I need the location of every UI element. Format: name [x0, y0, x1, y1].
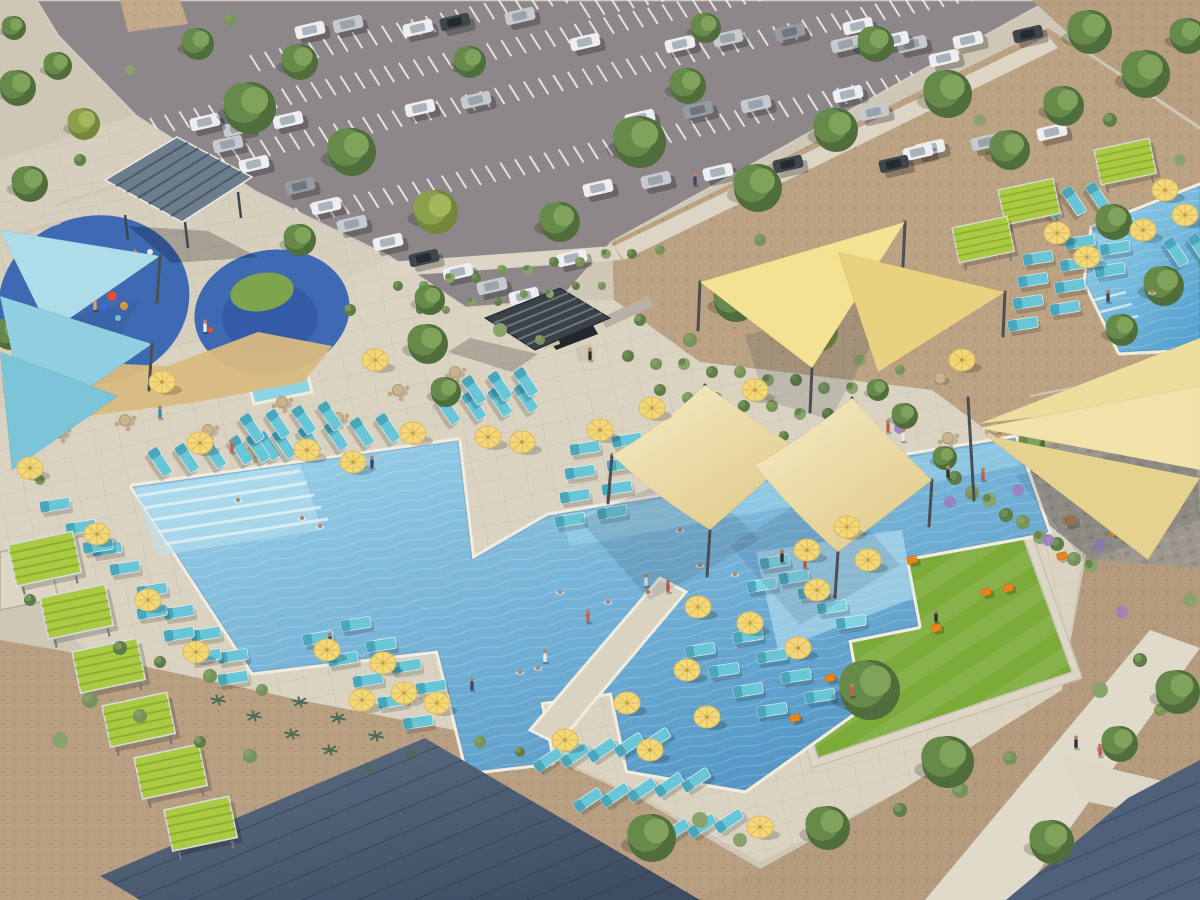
shrub-highlight: [494, 298, 498, 302]
person-shadow: [1106, 302, 1112, 305]
umbrella-pole: [1085, 255, 1089, 259]
tree: [0, 70, 36, 106]
shrub-highlight: [575, 257, 581, 263]
umbrella-pole: [805, 548, 809, 552]
umbrella-pole: [325, 648, 329, 652]
person-head: [934, 610, 938, 614]
tree-canopy-top: [24, 169, 43, 188]
table: [935, 373, 946, 384]
shrub-highlight: [54, 734, 63, 743]
tree-canopy-top: [1182, 21, 1200, 40]
shrub-highlight: [1184, 594, 1192, 602]
person-body: [934, 613, 937, 622]
shrub-highlight: [445, 273, 451, 279]
chair: [345, 414, 350, 419]
shrub-highlight: [735, 367, 742, 374]
lounger-back: [756, 652, 767, 664]
lounger-back: [746, 581, 757, 593]
person-body: [543, 653, 546, 662]
umbrella-pole: [696, 605, 700, 609]
tree-canopy-top: [631, 121, 658, 148]
person-shadow: [666, 592, 672, 595]
tree-canopy-top: [870, 29, 889, 48]
tree-canopy-top: [860, 665, 891, 696]
sail-mast: [810, 368, 812, 412]
shrub-highlight: [549, 257, 555, 263]
person-shadow: [230, 452, 236, 455]
umbrella-pole: [648, 748, 652, 752]
person-shadow: [981, 480, 987, 483]
tree-canopy-top: [750, 168, 775, 193]
lounger-back: [1059, 260, 1070, 272]
person-shadow: [1074, 748, 1080, 751]
shrub-highlight: [1175, 155, 1182, 162]
umbrella-pole: [796, 646, 800, 650]
play-equipment: [107, 291, 117, 301]
lounger-back: [1007, 320, 1018, 332]
chair: [405, 386, 410, 391]
umbrella-pole: [758, 825, 762, 829]
tree-canopy-top: [682, 71, 701, 90]
chair: [941, 385, 946, 390]
tree-canopy-top: [295, 227, 312, 244]
person-body: [203, 323, 206, 332]
person-shadow: [901, 441, 907, 444]
shrub-highlight: [598, 282, 602, 286]
tree-canopy-top: [874, 381, 885, 392]
tree-canopy-top: [10, 18, 22, 30]
umbrella-pole: [305, 448, 309, 452]
person-body: [850, 687, 853, 696]
person-head: [693, 173, 697, 177]
person-head: [946, 466, 950, 470]
chair: [61, 439, 66, 444]
tree-canopy-top: [1171, 674, 1194, 697]
person-shadow: [886, 432, 892, 435]
chair: [132, 416, 137, 421]
person-body: [230, 443, 233, 452]
shrub-highlight: [125, 65, 131, 71]
shrub-highlight: [572, 282, 576, 286]
person-body: [1098, 747, 1101, 756]
chair: [399, 397, 404, 402]
lounger-back: [163, 630, 174, 642]
chair: [955, 434, 960, 439]
shrub-highlight: [679, 359, 686, 366]
tree-canopy-top: [553, 206, 574, 227]
lounger-back: [1017, 276, 1028, 288]
shrub-highlight: [75, 155, 82, 162]
lounger-back: [39, 501, 50, 513]
person-body: [1106, 293, 1109, 302]
tree-canopy-top: [421, 328, 442, 349]
tree-canopy-top: [441, 380, 457, 396]
tree-canopy-top: [1114, 729, 1133, 748]
lounger-back: [1022, 254, 1033, 266]
lounger-back: [365, 641, 376, 653]
tree-canopy-top: [425, 288, 441, 304]
umbrella-pole: [598, 428, 602, 432]
umbrella-pole: [146, 598, 150, 602]
lounger-back: [804, 692, 815, 704]
umbrella-pole: [845, 525, 849, 529]
swimmer-head: [300, 516, 304, 520]
umbrella-pole: [1163, 188, 1167, 192]
umbrella-pole: [1183, 213, 1187, 217]
shrub-highlight: [494, 324, 502, 332]
table: [943, 433, 954, 444]
shrub-highlight: [155, 657, 162, 664]
umbrella-pole: [381, 661, 385, 665]
shrub-highlight: [755, 235, 762, 242]
shrub-highlight: [475, 737, 482, 744]
shrub-highlight: [244, 750, 252, 758]
person-shadow: [586, 622, 592, 625]
flowering-shrub: [1116, 606, 1128, 618]
lounger-back: [1012, 298, 1023, 310]
lounger-back: [109, 564, 120, 576]
table: [450, 367, 461, 378]
shrub-highlight: [345, 305, 352, 312]
shrub-highlight: [779, 431, 785, 437]
person-shadow: [543, 662, 549, 665]
swimmer-head: [536, 666, 540, 670]
person-body: [946, 469, 949, 478]
tree-canopy-top: [701, 16, 717, 32]
lounger-back: [402, 718, 413, 730]
shrub-highlight: [204, 670, 212, 678]
umbrella-pole: [351, 460, 355, 464]
shrub-highlight: [1034, 531, 1042, 539]
chair: [930, 380, 935, 385]
shrub-highlight: [471, 273, 477, 279]
sail-mast: [1003, 292, 1005, 336]
sail-mast: [903, 222, 905, 266]
shrub-highlight: [983, 494, 991, 502]
swimmer-head: [558, 590, 562, 594]
lounger-back: [780, 672, 791, 684]
tree-canopy-top: [941, 448, 953, 460]
chair: [215, 426, 220, 431]
lounger-back: [340, 620, 351, 632]
person-body: [901, 432, 904, 441]
lounger-back: [835, 618, 846, 630]
shrub-highlight: [1134, 654, 1142, 662]
shrub-highlight: [25, 595, 32, 602]
flowering-shrub: [1042, 534, 1054, 546]
person-head: [230, 440, 234, 444]
shrub-highlight: [684, 334, 692, 342]
shrub-highlight: [651, 359, 658, 366]
swimmer-head: [733, 572, 737, 576]
shrub-highlight: [694, 814, 703, 823]
shrub-highlight: [1104, 114, 1112, 122]
person-body: [470, 681, 473, 690]
chair: [947, 374, 952, 379]
person-shadow: [588, 360, 594, 363]
person-head: [328, 633, 332, 637]
tree-canopy-top: [1045, 824, 1068, 847]
shrub-highlight: [535, 335, 541, 341]
tree-canopy-top: [53, 55, 68, 70]
table: [277, 397, 288, 408]
umbrella-pole: [95, 532, 99, 536]
lounger-back: [559, 492, 570, 504]
lounger-back: [756, 706, 767, 718]
shrub-highlight: [707, 367, 714, 374]
tree-canopy-top: [821, 810, 844, 833]
shrub-highlight: [635, 315, 642, 322]
person-body: [586, 613, 589, 622]
flowering-shrub: [944, 496, 956, 508]
person-body: [370, 459, 373, 468]
person-head: [586, 610, 590, 614]
shrub-highlight: [655, 245, 661, 251]
umbrella-pole: [650, 406, 654, 410]
lounger-back: [569, 444, 580, 456]
shrub-highlight: [683, 393, 690, 400]
swimmer-head: [236, 498, 240, 502]
umbrella-pole: [360, 698, 364, 702]
shrub-highlight: [734, 834, 742, 842]
tree-canopy-top: [1138, 54, 1163, 79]
person-body: [886, 423, 889, 432]
chair: [126, 427, 131, 432]
shrub-highlight: [894, 804, 902, 812]
shrub-highlight: [515, 747, 521, 753]
person-shadow: [934, 622, 940, 625]
umbrella-pole: [402, 691, 406, 695]
chair: [289, 398, 294, 403]
person-body: [93, 301, 96, 310]
swimmer-head: [318, 524, 322, 528]
shrub-highlight: [134, 710, 142, 718]
shrub-highlight: [975, 115, 982, 122]
chair: [272, 404, 277, 409]
person-shadow: [470, 690, 476, 693]
tree-canopy-top: [901, 405, 915, 419]
tree-canopy-top: [429, 194, 452, 217]
chair: [938, 440, 943, 445]
shrub-highlight: [1004, 752, 1012, 760]
shrub-highlight: [114, 642, 122, 650]
person-head: [543, 650, 547, 654]
person-head: [588, 348, 592, 352]
person-head: [850, 684, 854, 688]
person-head: [1074, 736, 1078, 740]
table: [393, 385, 404, 396]
person-shadow: [1098, 756, 1104, 759]
umbrella-pole: [960, 358, 964, 362]
umbrella-pole: [685, 668, 689, 672]
person-head: [901, 429, 905, 433]
swimmer-head: [606, 600, 610, 604]
shrub-highlight: [623, 351, 630, 358]
tree-canopy-top: [1003, 134, 1024, 155]
umbrella-pole: [748, 621, 752, 625]
umbrella-pole: [1055, 231, 1059, 235]
umbrella-pole: [198, 441, 202, 445]
tree-canopy-top: [1157, 270, 1178, 291]
swimmer-head: [518, 670, 522, 674]
chair: [283, 409, 288, 414]
tree-canopy-top: [1083, 14, 1106, 37]
lounger-back: [684, 646, 695, 658]
shrub-highlight: [739, 401, 746, 408]
tree-canopy-top: [1057, 90, 1078, 111]
person-shadow: [158, 418, 164, 421]
umbrella-pole: [435, 701, 439, 705]
umbrella-pole: [815, 588, 819, 592]
person-head: [158, 406, 162, 410]
tree-canopy-top: [1108, 207, 1127, 226]
tree-canopy-top: [344, 132, 369, 157]
person-shadow: [203, 332, 209, 335]
person-body: [588, 351, 591, 360]
tree-canopy-top: [241, 87, 268, 114]
shrub-highlight: [895, 365, 901, 371]
umbrella-pole: [866, 558, 870, 562]
shrub-highlight: [523, 265, 529, 271]
person-body: [158, 409, 161, 418]
person-body: [981, 471, 984, 480]
shrub-highlight: [468, 298, 472, 302]
tree-canopy-top: [193, 31, 210, 48]
person-head: [1098, 744, 1102, 748]
tree-canopy-top: [939, 741, 966, 768]
tree-canopy-top: [294, 47, 313, 66]
chair: [462, 368, 467, 373]
umbrella-pole: [1141, 228, 1145, 232]
tree-canopy-top: [644, 818, 669, 843]
umbrella-pole: [486, 435, 490, 439]
tree-canopy-top: [79, 111, 96, 128]
shrub-highlight: [520, 290, 524, 294]
lounger-back: [708, 666, 719, 678]
lounger-back: [352, 676, 363, 688]
shrub-highlight: [655, 385, 662, 392]
shrub-highlight: [195, 737, 202, 744]
lounger-back: [1054, 282, 1065, 294]
umbrella-pole: [373, 358, 377, 362]
shrub-highlight: [627, 249, 633, 255]
lounger-back: [1099, 244, 1110, 256]
umbrella-pole: [194, 650, 198, 654]
chair: [388, 392, 393, 397]
person-shadow: [850, 696, 856, 699]
shrub-highlight: [393, 281, 399, 287]
umbrella-pole: [625, 701, 629, 705]
umbrella-pole: [520, 440, 524, 444]
umbrella-pole: [160, 380, 164, 384]
tree-canopy-top: [12, 73, 31, 92]
shrub-highlight: [84, 694, 93, 703]
person-head: [981, 468, 985, 472]
shrub-highlight: [1000, 509, 1008, 517]
person-head: [470, 678, 474, 682]
umbrella-pole: [563, 738, 567, 742]
shrub-highlight: [1094, 684, 1103, 693]
swimmer-head: [1150, 290, 1154, 294]
lounger-back: [217, 674, 228, 686]
shrub-highlight: [1068, 553, 1076, 561]
tree-canopy-top: [829, 112, 852, 135]
shrub-highlight: [497, 265, 503, 271]
chair: [115, 422, 120, 427]
person-shadow: [693, 185, 699, 188]
lounger-back: [732, 686, 743, 698]
person-head: [203, 320, 207, 324]
flowering-shrub: [1012, 484, 1024, 496]
lounger-back: [554, 516, 565, 528]
lounger-back: [302, 634, 313, 646]
lounger-back: [564, 468, 575, 480]
umbrella-pole: [28, 466, 32, 470]
person-body: [693, 176, 696, 185]
umbrella-pole: [411, 431, 415, 435]
person-head: [370, 456, 374, 460]
lounger-back: [732, 632, 743, 644]
shrub-highlight: [1017, 516, 1025, 524]
umbrella-pole: [753, 388, 757, 392]
person-head: [1106, 290, 1110, 294]
sail-mast: [698, 282, 700, 330]
shrub-highlight: [257, 685, 264, 692]
tree-canopy-top: [465, 49, 482, 66]
scene-canvas: [0, 0, 1200, 900]
shrub-highlight: [601, 249, 607, 255]
shrub-highlight: [546, 290, 550, 294]
tree-canopy-top: [940, 74, 965, 99]
tree-canopy-top: [1117, 317, 1134, 334]
table: [120, 415, 131, 426]
umbrella-pole: [705, 715, 709, 719]
aerial-pool-rendering: [0, 0, 1200, 900]
person-body: [1074, 739, 1077, 748]
shrub-highlight: [225, 15, 232, 22]
person-shadow: [946, 478, 952, 481]
person-head: [886, 420, 890, 424]
lounger-back: [1049, 304, 1060, 316]
